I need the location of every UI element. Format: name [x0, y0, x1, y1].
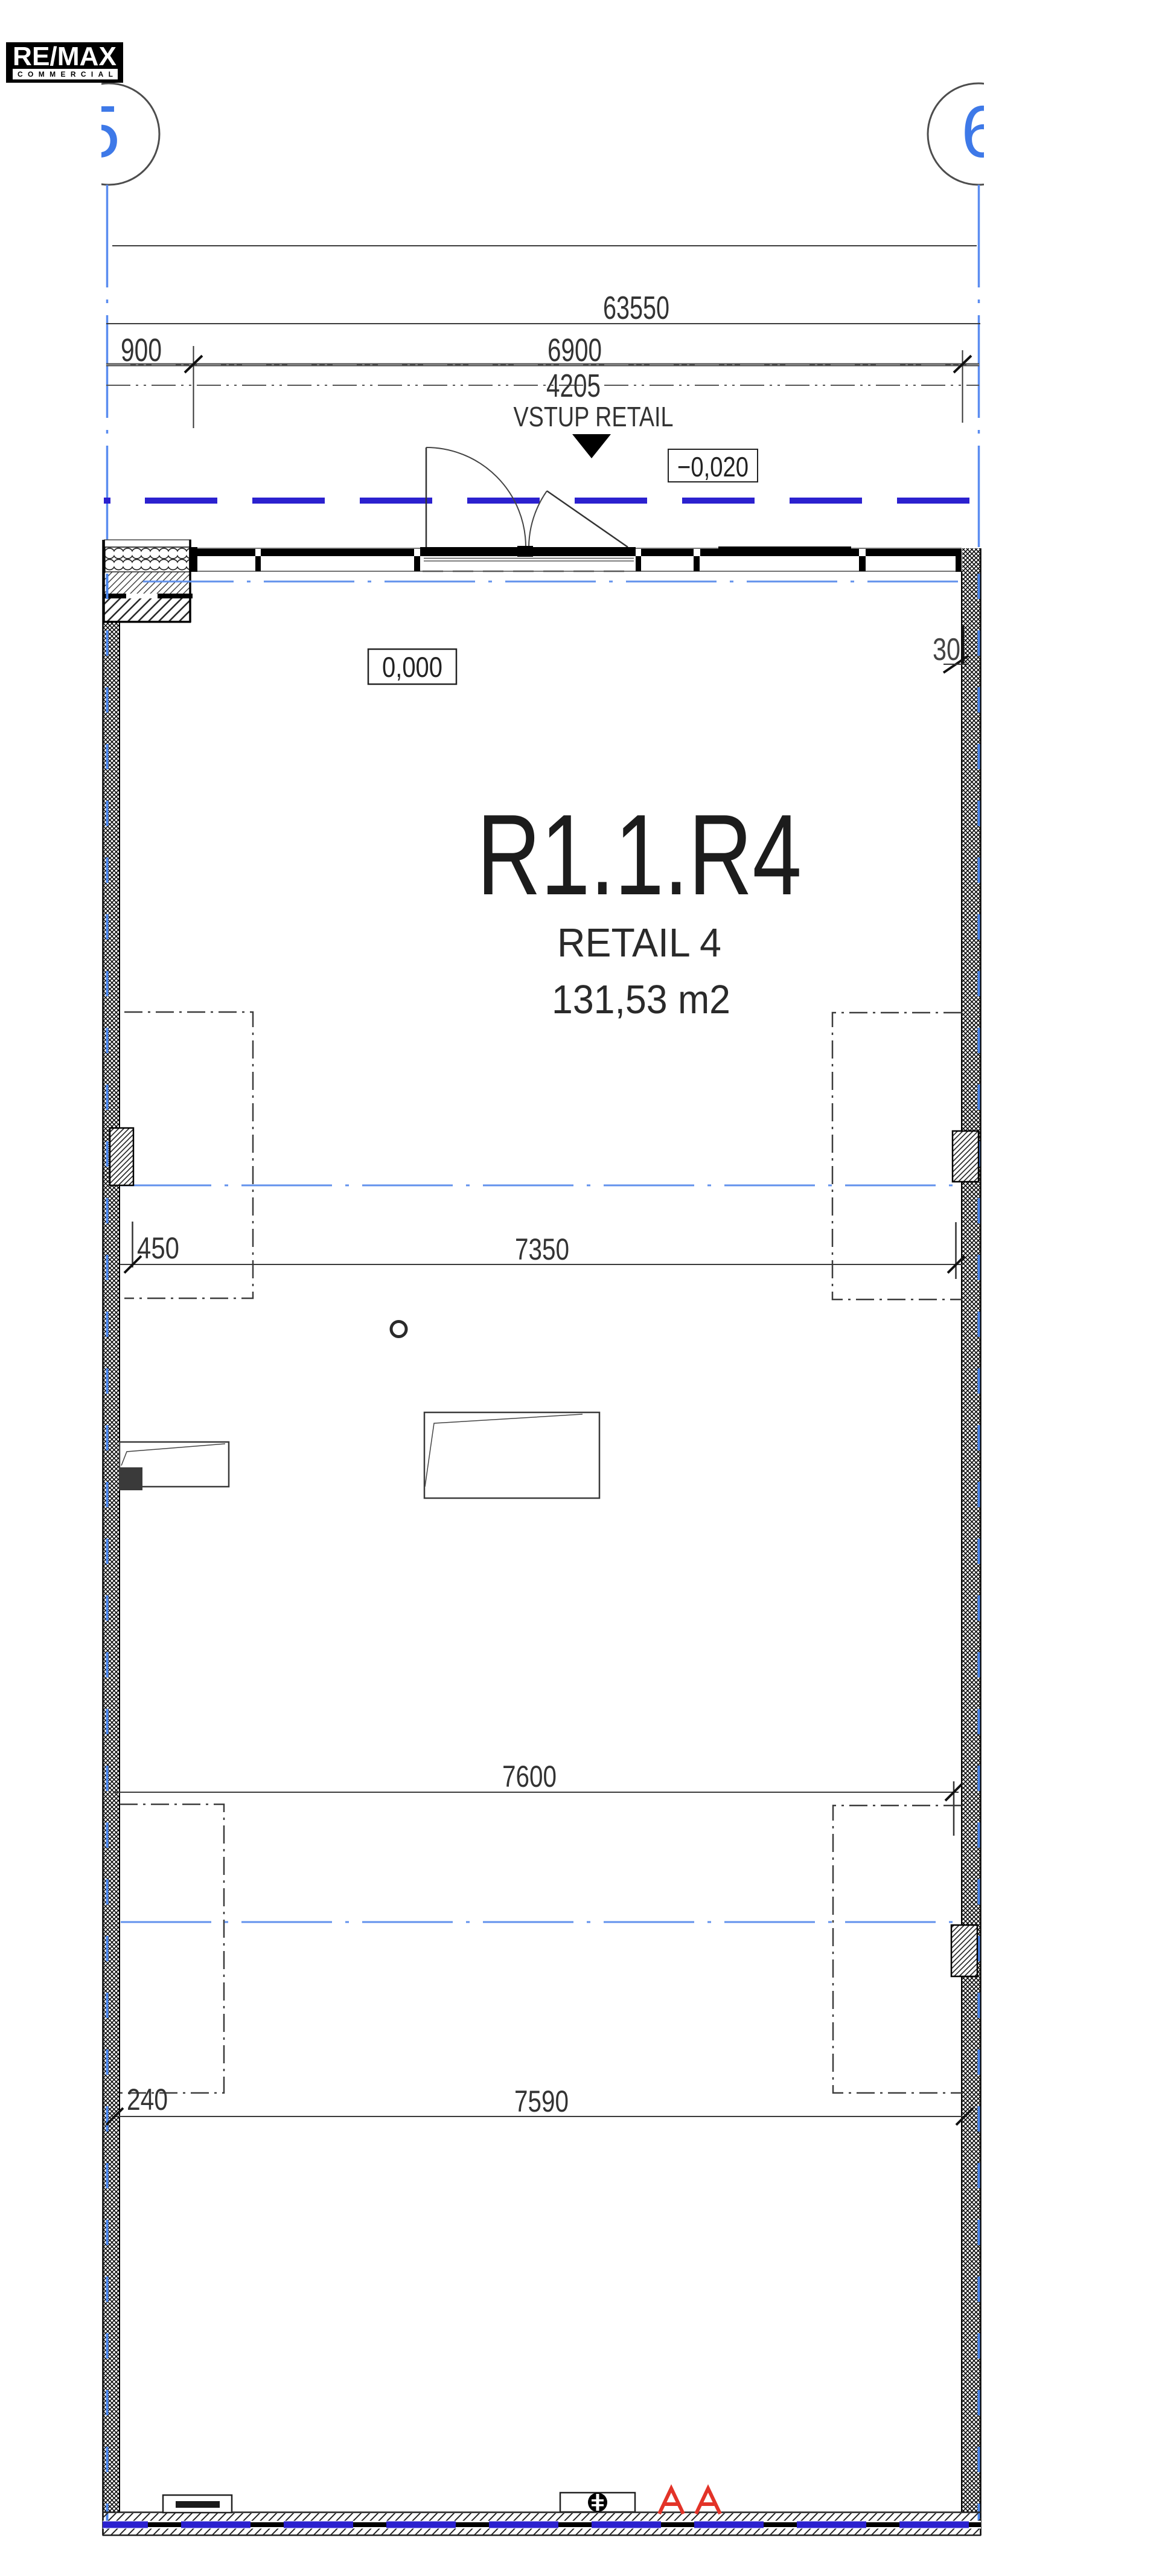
- svg-text:0,000: 0,000: [382, 651, 442, 683]
- svg-text:900: 900: [121, 332, 162, 368]
- svg-text:6900: 6900: [548, 332, 602, 368]
- svg-text:7590: 7590: [514, 2084, 569, 2118]
- svg-text:30: 30: [933, 632, 960, 667]
- svg-text:COMMERCIAL: COMMERCIAL: [18, 70, 113, 78]
- svg-text:240: 240: [127, 2083, 168, 2116]
- svg-text:131,53 m2: 131,53 m2: [552, 977, 730, 1022]
- svg-text:R1.1.R4: R1.1.R4: [477, 791, 802, 919]
- svg-text:RETAIL 4: RETAIL 4: [557, 920, 721, 966]
- svg-text:7350: 7350: [515, 1232, 569, 1266]
- svg-text:7600: 7600: [502, 1760, 557, 1793]
- svg-text:63550: 63550: [603, 290, 669, 326]
- svg-text:4205: 4205: [546, 368, 601, 404]
- svg-text:−0,020: −0,020: [677, 451, 749, 482]
- svg-text:450: 450: [137, 1231, 179, 1265]
- svg-text:RE/MAX: RE/MAX: [13, 42, 117, 71]
- svg-text:VSTUP RETAIL: VSTUP RETAIL: [514, 401, 674, 432]
